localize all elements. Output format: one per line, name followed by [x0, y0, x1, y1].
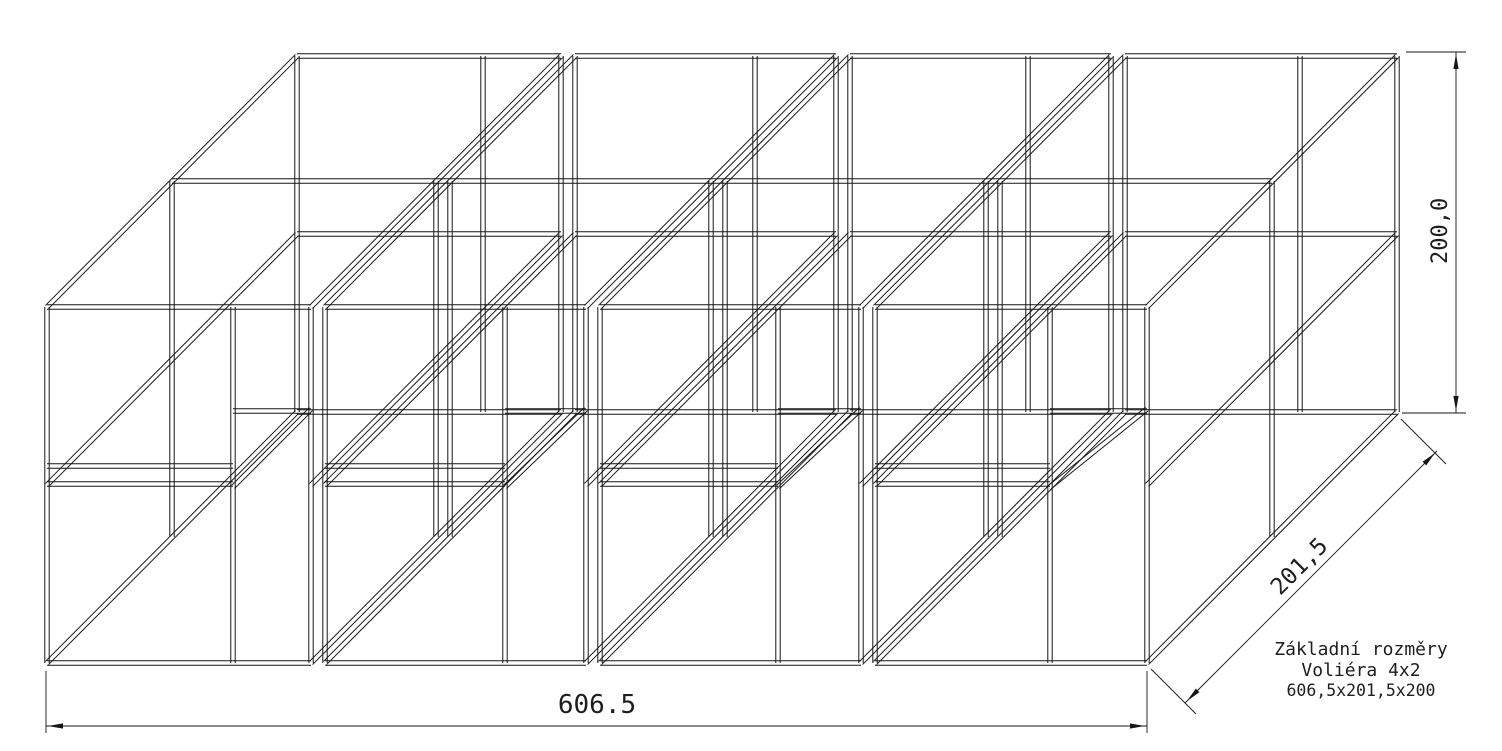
title-block: Základní rozměry Voliéra 4x2 606,5x201,5… [1245, 639, 1477, 700]
title-block-line-1: Základní rozměry [1245, 639, 1477, 661]
title-block-line-3: 606,5x201,5x200 [1245, 681, 1477, 700]
dimension-height-label: 200,0 [1428, 198, 1453, 264]
title-block-line-2: Voliéra 4x2 [1245, 661, 1477, 681]
cad-drawing-canvas: 606.5 200,0 201,5 Základní rozměry Volié… [0, 0, 1502, 751]
dimension-width-label: 606.5 [512, 690, 682, 720]
